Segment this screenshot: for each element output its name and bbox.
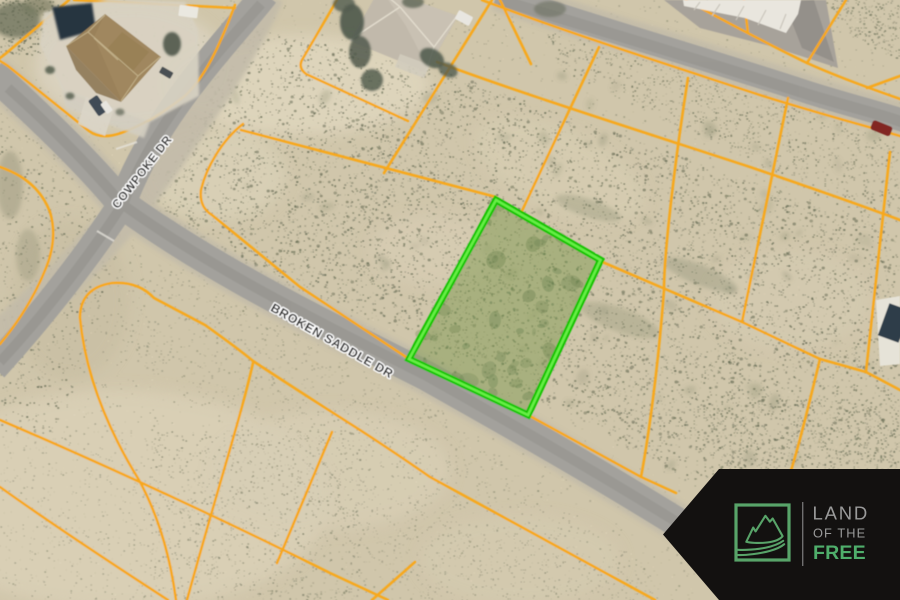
svg-text:LAND: LAND	[813, 503, 870, 524]
svg-text:OF THE: OF THE	[813, 526, 866, 541]
svg-text:FREE: FREE	[813, 542, 866, 564]
